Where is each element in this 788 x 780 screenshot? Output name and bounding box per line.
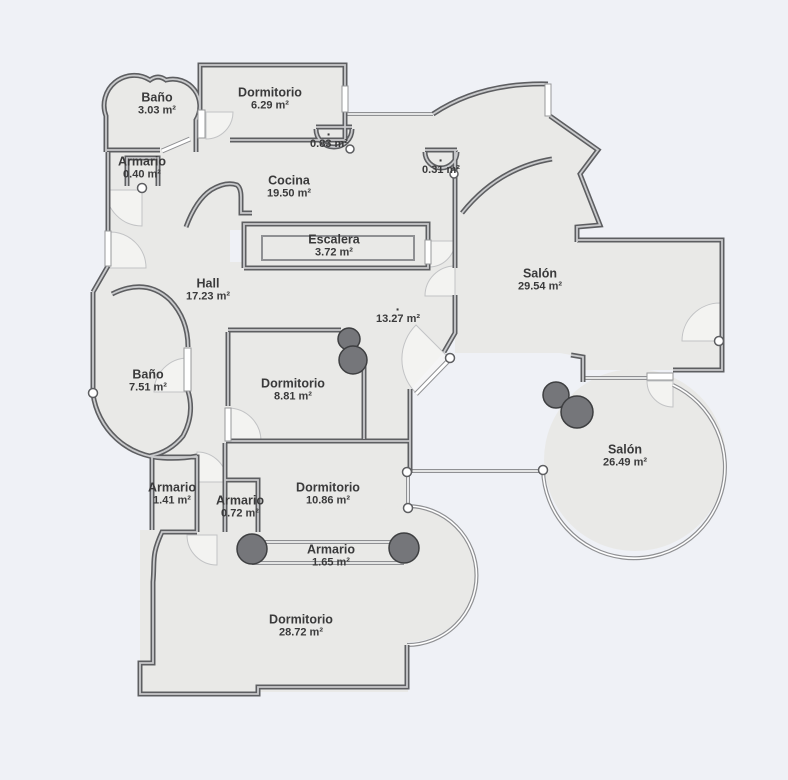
hinge-dot bbox=[138, 184, 147, 193]
hinge-dot bbox=[715, 337, 724, 346]
hinge-dot bbox=[450, 170, 458, 178]
window bbox=[342, 86, 348, 112]
floor-plan-drawing bbox=[0, 0, 788, 780]
floor-plan: Baño 3.03 m² Dormitorio 6.29 m² Armario … bbox=[0, 0, 788, 780]
door-leaf bbox=[425, 240, 431, 264]
stairs bbox=[262, 236, 414, 260]
column bbox=[389, 533, 419, 563]
hinge-dot bbox=[89, 389, 98, 398]
hinge-dot bbox=[446, 354, 455, 363]
column bbox=[561, 396, 593, 428]
hinge-dot bbox=[404, 504, 413, 513]
floor-armario-141 bbox=[150, 453, 200, 535]
window bbox=[105, 231, 111, 266]
hinge-dot bbox=[403, 468, 412, 477]
hinge-dot bbox=[539, 466, 548, 475]
window bbox=[545, 84, 551, 116]
column bbox=[339, 346, 367, 374]
column bbox=[237, 534, 267, 564]
door-leaf bbox=[225, 408, 231, 441]
window bbox=[184, 348, 191, 391]
hinge-dot bbox=[346, 145, 354, 153]
door-leaf bbox=[647, 373, 673, 380]
door-leaf bbox=[198, 110, 205, 138]
